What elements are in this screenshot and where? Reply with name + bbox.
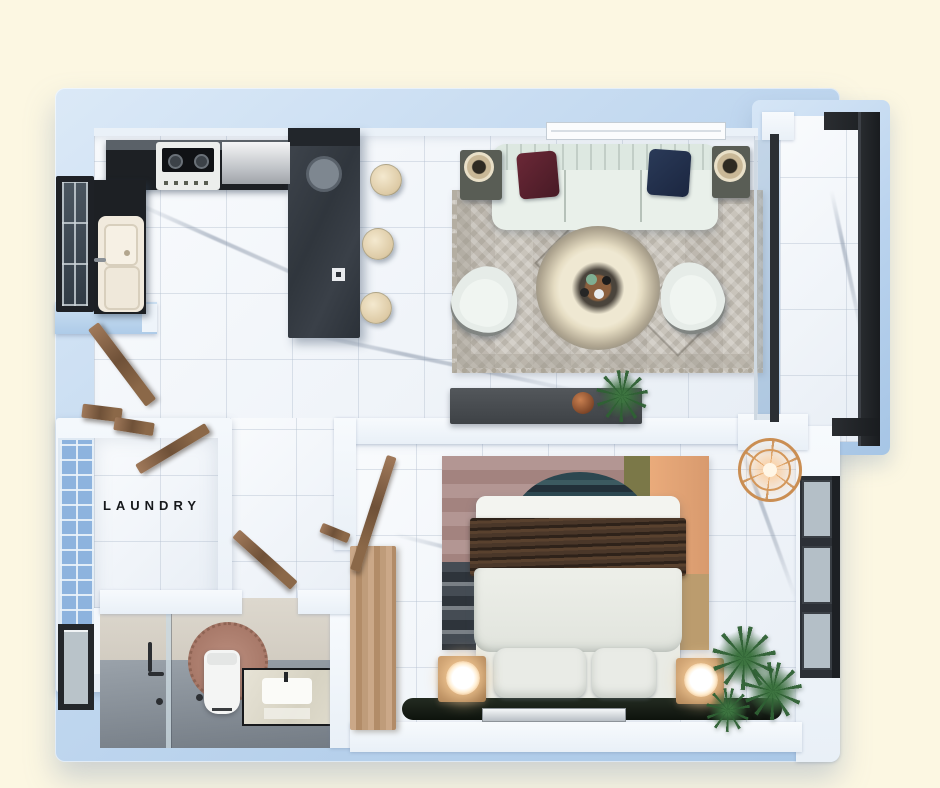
burner bbox=[168, 154, 183, 169]
shower-glass-panel bbox=[166, 598, 171, 748]
gas-stove bbox=[156, 142, 220, 190]
window-outer-fin bbox=[832, 476, 840, 678]
table-decor-white bbox=[594, 289, 604, 299]
balcony-railing-right bbox=[858, 112, 880, 446]
kitchen-window bbox=[56, 176, 94, 312]
sofa-cushion-seam bbox=[640, 170, 642, 222]
copper-vase bbox=[572, 392, 594, 414]
stainless-worktop bbox=[222, 142, 290, 184]
bar-stool bbox=[360, 292, 392, 324]
sink-basin bbox=[104, 266, 140, 310]
sphere-lamp-left bbox=[446, 661, 480, 695]
silver-tray bbox=[482, 708, 626, 722]
laundry-label: LAUNDRY bbox=[86, 498, 218, 513]
wall-bathroom-top-left bbox=[100, 590, 242, 614]
kitchen-island bbox=[288, 128, 360, 338]
ceiling-fan-light bbox=[738, 438, 802, 502]
burner bbox=[194, 154, 209, 169]
sliding-door-glass bbox=[757, 140, 770, 420]
shower-drain-fixture bbox=[156, 698, 163, 705]
kitchen-window-mullions bbox=[62, 182, 88, 306]
window-pane bbox=[802, 612, 832, 670]
bathroom-window-glass bbox=[64, 630, 88, 704]
table-decor-dark bbox=[580, 288, 589, 297]
vanity-faucet bbox=[284, 672, 288, 682]
stove-knobs bbox=[164, 181, 212, 185]
window-pane bbox=[802, 546, 832, 604]
balcony-railing-bottom bbox=[832, 418, 880, 436]
toilet-tank bbox=[207, 653, 237, 665]
navy-throw-pillow bbox=[646, 149, 691, 198]
bedroom-plant bbox=[706, 688, 750, 732]
island-switch bbox=[332, 268, 345, 281]
table-lamp-right bbox=[714, 150, 746, 182]
floor-plan: LAUNDRY bbox=[0, 0, 940, 788]
cooktop bbox=[162, 148, 214, 172]
shower-fixture bbox=[148, 642, 152, 672]
vanity bbox=[242, 668, 340, 726]
bathroom bbox=[100, 598, 352, 748]
vanity-reflection bbox=[264, 708, 310, 719]
white-duvet bbox=[474, 568, 682, 652]
table-decor-dark bbox=[602, 276, 611, 285]
island-top-cap bbox=[288, 128, 360, 146]
living-room-plant bbox=[596, 370, 648, 422]
sink-basin bbox=[104, 224, 138, 266]
bar-stool bbox=[370, 164, 402, 196]
round-coffee-table bbox=[536, 226, 660, 350]
bedroom-window bbox=[800, 476, 840, 678]
kitchen-sink bbox=[98, 216, 144, 312]
bed-sheet-fold bbox=[476, 496, 680, 520]
maroon-throw-pillow bbox=[516, 150, 560, 199]
toilet-base bbox=[212, 708, 232, 711]
bedroom-plant bbox=[744, 662, 802, 720]
island-sink bbox=[306, 156, 342, 192]
table-decor-green bbox=[586, 274, 597, 285]
sink-drain bbox=[124, 250, 130, 256]
wall-bathroom-top-right bbox=[298, 590, 354, 614]
sliding-door-frame bbox=[770, 134, 779, 422]
window-above-sofa bbox=[546, 122, 726, 140]
wardrobe bbox=[350, 546, 396, 730]
table-lamp-left bbox=[464, 152, 494, 182]
bathroom-window bbox=[58, 624, 94, 710]
sofa-cushion-seam bbox=[564, 170, 566, 222]
sink-faucet bbox=[94, 258, 106, 262]
floor-drain bbox=[196, 694, 203, 701]
bed-pillow-left bbox=[494, 648, 586, 698]
window-pane bbox=[802, 480, 832, 538]
bed-pillow-right bbox=[592, 648, 656, 698]
toilet bbox=[204, 650, 240, 714]
shower-fixture bbox=[148, 672, 164, 676]
bar-stool bbox=[362, 228, 394, 260]
